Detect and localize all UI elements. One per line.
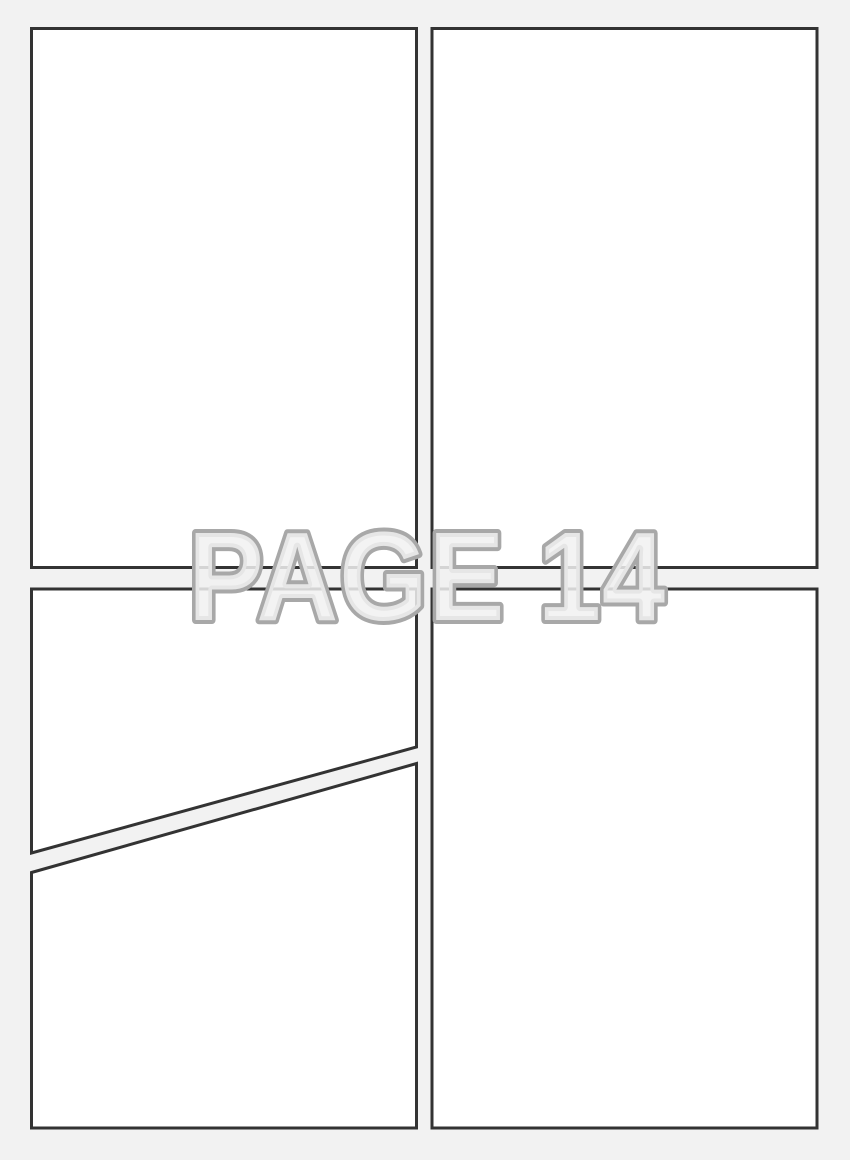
comic-page-canvas: PAGE 14 bbox=[0, 0, 850, 1160]
panel-top-right bbox=[432, 29, 817, 568]
page-number-watermark: PAGE 14 bbox=[188, 506, 666, 647]
panel-bottom-right bbox=[432, 589, 817, 1128]
panel-top-left bbox=[32, 29, 417, 568]
comic-page-template: PAGE 14 bbox=[0, 0, 850, 1160]
